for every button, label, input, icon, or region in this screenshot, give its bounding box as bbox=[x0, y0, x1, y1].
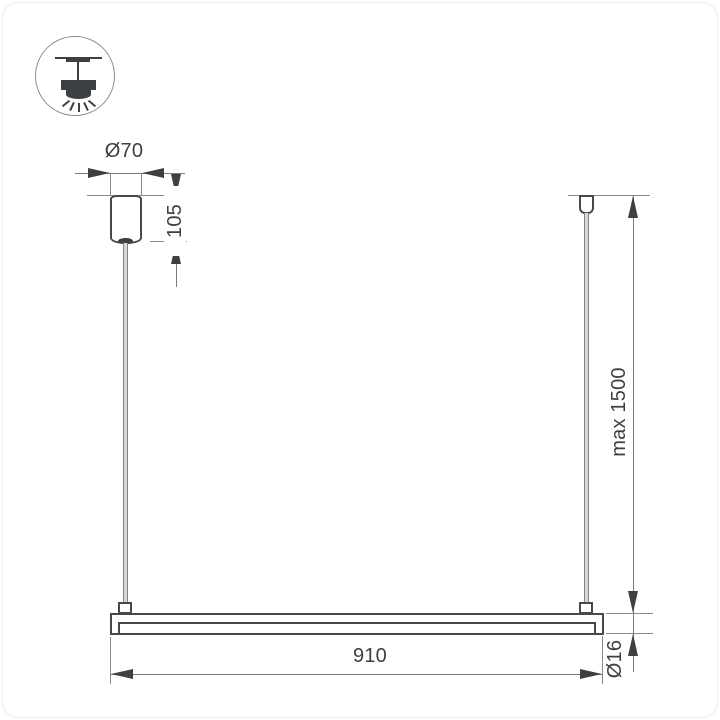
suspension-cable-right bbox=[584, 213, 589, 603]
dim-arrowhead bbox=[142, 168, 164, 178]
dim-arrowhead bbox=[628, 591, 638, 613]
dim-arrowhead bbox=[88, 168, 110, 178]
cord-grip-right bbox=[579, 195, 594, 214]
light-bar-diffuser bbox=[118, 622, 596, 635]
dim-arrowhead bbox=[628, 196, 638, 218]
dim-canopy-height-label: 105 bbox=[164, 186, 186, 256]
icon-light-ray bbox=[83, 102, 89, 111]
dim-max-drop-label: max 1500 bbox=[608, 352, 630, 472]
dim-arrowhead bbox=[580, 669, 602, 679]
pendant-ceiling-light-icon bbox=[35, 36, 115, 116]
icon-light-ray bbox=[62, 100, 70, 107]
dim-max-drop-line bbox=[633, 196, 634, 613]
extension-line bbox=[602, 636, 603, 684]
icon-light-ray bbox=[88, 100, 96, 107]
dim-canopy-diameter-label: Ø70 bbox=[89, 140, 159, 162]
extension-line bbox=[110, 174, 111, 196]
suspension-cable-left bbox=[123, 243, 128, 603]
dim-bar-length-label: 910 bbox=[335, 645, 405, 667]
extension-line bbox=[606, 613, 653, 614]
icon-lamp-dome bbox=[66, 90, 91, 99]
dim-bar-diameter-label: Ø16 bbox=[604, 624, 626, 694]
icon-lamp-body bbox=[61, 80, 96, 90]
icon-stem bbox=[77, 59, 79, 80]
icon-light-ray bbox=[78, 103, 80, 112]
dim-bar-length-line bbox=[110, 674, 603, 675]
extension-line bbox=[141, 174, 142, 196]
canopy bbox=[110, 195, 142, 244]
dim-arrowhead bbox=[628, 634, 638, 656]
dim-arrowhead bbox=[111, 669, 133, 679]
technical-drawing: Ø70 105 max 1500 Ø16 910 bbox=[0, 0, 720, 720]
icon-light-ray bbox=[69, 102, 75, 111]
